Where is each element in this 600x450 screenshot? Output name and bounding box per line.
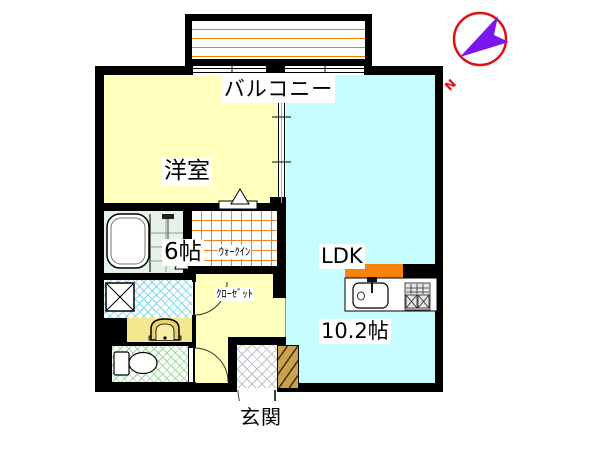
wall-junction <box>270 197 286 211</box>
entrance-label: 玄関 <box>238 353 284 450</box>
compass-needle-icon <box>460 16 509 57</box>
room-toilet <box>112 346 188 382</box>
balcony-label: バルコニー <box>193 25 364 151</box>
washbasin-counter <box>127 318 192 342</box>
compass-icon <box>454 13 509 65</box>
hallway-lower <box>196 337 228 383</box>
floor-plan: バルコニー 洋室 6帖 LDK 10.2帖 ｳｫｰｸｲﾝ ｸﾛｰｾﾞｯﾄ 玄関 … <box>0 0 600 450</box>
kitchen-counter-end <box>403 264 437 278</box>
walk-in-closet-label: ｳｫｰｸｲﾝ ｸﾛｰｾﾞｯﾄ <box>192 217 277 329</box>
ldk-label: LDK 10.2帖 <box>319 194 391 394</box>
hall-ldk-opening <box>285 298 286 337</box>
